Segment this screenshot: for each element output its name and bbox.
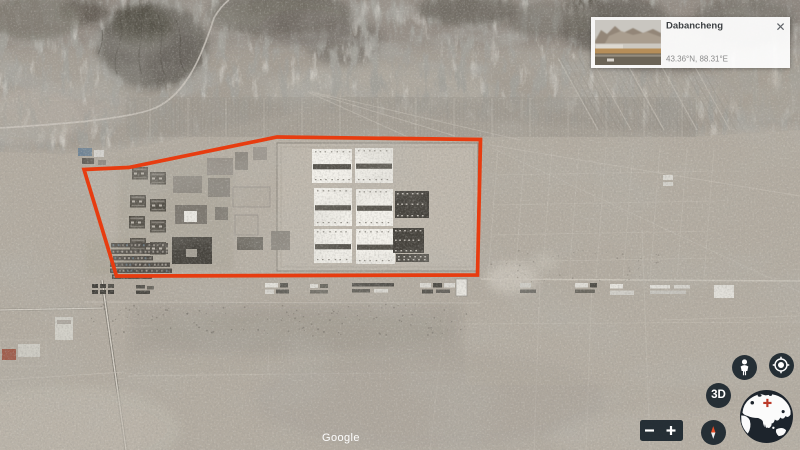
svg-text:Google: Google [322,432,360,444]
